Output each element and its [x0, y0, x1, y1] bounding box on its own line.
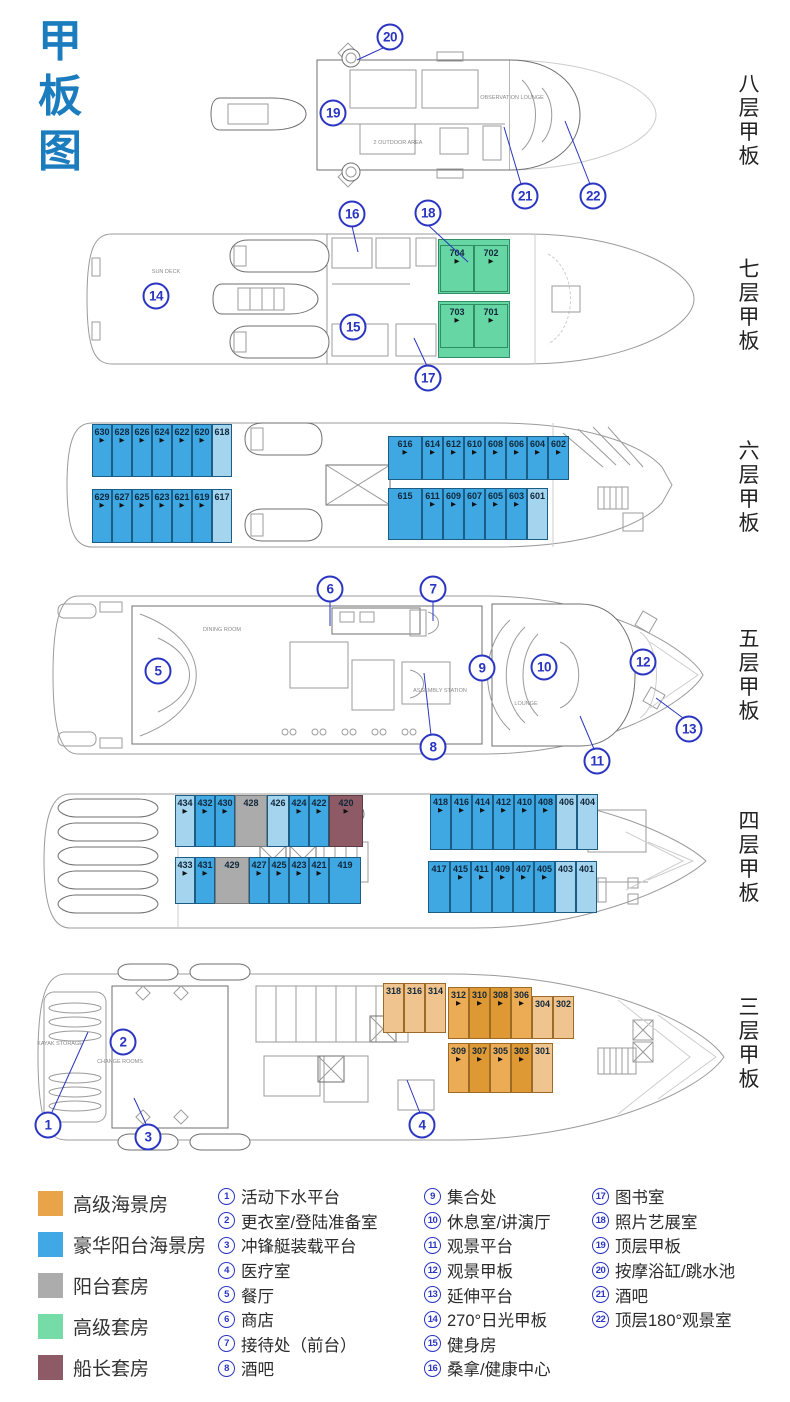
callout-number: 14	[149, 289, 163, 304]
door-arrow-icon: ▶	[451, 450, 456, 457]
facility-label: 观景甲板	[447, 1258, 513, 1282]
door-arrow-icon: ▶	[317, 809, 322, 816]
room-number: 610	[467, 440, 482, 449]
door-arrow-icon: ▶	[472, 450, 477, 457]
cabin-room: 627 ▶	[112, 489, 132, 543]
door-arrow-icon: ▶	[535, 450, 540, 457]
door-arrow-icon: ▶	[472, 502, 477, 509]
cabin-room: 406 ▶	[556, 794, 577, 850]
legend-facility-item: 9 集合处	[424, 1184, 551, 1209]
cabin-room: 620 ▶	[192, 424, 212, 477]
facility-label: 冲锋艇装载平台	[241, 1233, 357, 1257]
facility-label: 活动下水平台	[241, 1184, 340, 1208]
room-number: 305	[493, 1047, 508, 1056]
cabin-room: 432 ▶	[195, 795, 215, 847]
room-type-color-swatch	[38, 1273, 63, 1298]
facility-label: 桑拿/健康中心	[447, 1356, 551, 1380]
cabin-room: 414 ▶	[472, 794, 493, 850]
callout-number: 11	[590, 754, 603, 769]
facility-label: 270°日光甲板	[447, 1307, 547, 1331]
room-type-label: 高级套房	[73, 1313, 149, 1340]
room-number: 607	[467, 492, 482, 501]
cabin-room: 617 ▶	[212, 489, 232, 543]
page-title: 甲 板 图	[38, 14, 82, 179]
ship-outline-deck-4	[28, 782, 723, 940]
room-number: 314	[428, 987, 443, 996]
cabin-room: 701 ▶	[474, 304, 508, 348]
door-arrow-icon: ▶	[183, 809, 188, 816]
deck-6-rooms-left-top: 630 ▶ 628 ▶ 626 ▶ 624 ▶ 622 ▶ 620 ▶ 618 …	[92, 424, 232, 477]
cabin-room: 304 ▶	[532, 996, 553, 1039]
room-number: 429	[224, 861, 239, 870]
door-arrow-icon: ▶	[514, 450, 519, 457]
room-number: 307	[472, 1047, 487, 1056]
deck-6-rooms-right-bottom: 615 ▶ 611 ▶ 609 ▶ 607 ▶ 605 ▶ 603 ▶ 601 …	[388, 488, 548, 540]
cabin-room: 302 ▶	[553, 996, 574, 1039]
cabin-room: 433 ▶	[175, 857, 195, 904]
facility-number-badge: 22	[592, 1311, 609, 1328]
cabin-room: 624 ▶	[152, 424, 172, 477]
callout-marker: 5	[145, 658, 172, 685]
room-number: 309	[451, 1047, 466, 1056]
plan-note: LOUNGE	[514, 701, 537, 707]
legend-facility-item: 16 桑拿/健康中心	[424, 1356, 551, 1381]
cabin-room: 422 ▶	[309, 795, 329, 847]
door-arrow-icon: ▶	[519, 1057, 524, 1064]
legend-facility-item: 2 更衣室/登陆准备室	[218, 1209, 378, 1234]
legend-facility-item: 7 接待处（前台）	[218, 1332, 378, 1357]
plan-note: 2 OUTDOOR AREA	[374, 140, 423, 146]
legend-facility-item: 11 观景平台	[424, 1233, 551, 1258]
room-number: 407	[516, 865, 531, 874]
room-number: 630	[94, 428, 109, 437]
cabin-room: 417 ▶	[428, 861, 450, 913]
callout-number: 22	[586, 189, 600, 204]
room-number: 412	[496, 798, 511, 807]
ship-outline-deck-5	[40, 582, 720, 767]
legend-facility-item: 6 商店	[218, 1307, 378, 1332]
cabin-room: 314 ▶	[425, 983, 446, 1033]
facility-number-badge: 15	[424, 1335, 441, 1352]
facility-number-badge: 19	[592, 1237, 609, 1254]
cabin-room: 601 ▶	[527, 488, 548, 540]
cabin-room: 424 ▶	[289, 795, 309, 847]
callout-number: 2	[119, 1035, 126, 1050]
cabin-room: 602 ▶	[548, 436, 569, 480]
facility-number-badge: 9	[424, 1188, 441, 1205]
door-arrow-icon: ▶	[498, 1001, 503, 1008]
room-number: 627	[114, 493, 129, 502]
ship-outline-deck-7	[80, 228, 710, 370]
room-number: 406	[559, 798, 574, 807]
facility-number-badge: 6	[218, 1311, 235, 1328]
cabin-room: 415 ▶	[450, 861, 471, 913]
deck-3-label: 三层甲板	[736, 996, 762, 1092]
facility-number-badge: 16	[424, 1360, 441, 1377]
deck-3-rooms-bottom: 309 ▶ 307 ▶ 305 ▶ 303 ▶ 301 ▶	[448, 1043, 553, 1093]
room-type-color-swatch	[38, 1232, 63, 1257]
room-type-color-swatch	[38, 1191, 63, 1216]
cabin-room: 401 ▶	[576, 861, 597, 913]
deck-7-label: 七层甲板	[736, 258, 762, 354]
cabin-room: 606 ▶	[506, 436, 527, 480]
deck-7-suites-bottom: 703 ▶ 701 ▶	[438, 301, 510, 358]
room-number: 431	[197, 861, 212, 870]
legend-room-type-row: 高级海景房	[38, 1183, 206, 1224]
door-arrow-icon: ▶	[180, 503, 185, 510]
callout-marker: 22	[580, 183, 607, 210]
cabin-room: 428 ▶	[235, 795, 267, 847]
deck-6-label: 六层甲板	[736, 440, 762, 536]
deck-8-label: 八层甲板	[736, 73, 762, 169]
cabin-room: 704 ▶	[440, 245, 474, 292]
callout-marker: 2	[110, 1029, 137, 1056]
room-number: 618	[214, 428, 229, 437]
legend-facility-item: 13 延伸平台	[424, 1282, 551, 1307]
door-arrow-icon: ▶	[100, 438, 105, 445]
door-arrow-icon: ▶	[203, 809, 208, 816]
cabin-room: 404 ▶	[577, 794, 598, 850]
cabin-room: 409 ▶	[492, 861, 513, 913]
facility-number-badge: 20	[592, 1262, 609, 1279]
callout-number: 6	[326, 582, 333, 597]
legend-facility-item: 18 照片艺展室	[592, 1209, 735, 1234]
callout-marker: 9	[469, 655, 496, 682]
callout-marker: 18	[415, 200, 442, 227]
door-arrow-icon: ▶	[200, 503, 205, 510]
legend-facilities-column-3: 17 图书室 18 照片艺展室 19 顶层甲板 20 按摩浴缸/跳水池 21 酒…	[592, 1184, 735, 1332]
plan-note: ASSEMBLY STATION	[413, 688, 467, 694]
room-number: 704	[449, 249, 464, 258]
legend-facilities-column-1: 1 活动下水平台 2 更衣室/登陆准备室 3 冲锋艇装载平台 4 医疗室 5 餐…	[218, 1184, 378, 1381]
room-number: 620	[194, 428, 209, 437]
door-arrow-icon: ▶	[200, 438, 205, 445]
room-number: 308	[493, 991, 508, 1000]
legend-facility-item: 15 健身房	[424, 1332, 551, 1357]
callout-number: 19	[326, 106, 340, 121]
cabin-room: 623 ▶	[152, 489, 172, 543]
room-number: 601	[530, 492, 545, 501]
facility-number-badge: 13	[424, 1286, 441, 1303]
facility-label: 接待处（前台）	[241, 1332, 357, 1356]
room-number: 626	[134, 428, 149, 437]
room-number: 427	[251, 861, 266, 870]
cabin-room: 305 ▶	[490, 1043, 511, 1093]
callout-number: 3	[144, 1130, 151, 1145]
callout-marker: 13	[676, 716, 703, 743]
cabin-room: 625 ▶	[132, 489, 152, 543]
door-arrow-icon: ▶	[556, 450, 561, 457]
callout-marker: 12	[630, 649, 657, 676]
legend-facility-item: 12 观景甲板	[424, 1258, 551, 1283]
cabin-room: 611 ▶	[422, 488, 443, 540]
door-arrow-icon: ▶	[489, 259, 494, 266]
room-number: 422	[311, 799, 326, 808]
cabin-room: 308 ▶	[490, 987, 511, 1039]
room-number: 414	[475, 798, 490, 807]
facility-label: 更衣室/登陆准备室	[241, 1209, 378, 1233]
legend-facilities-column-2: 9 集合处 10 休息室/讲演厅 11 观景平台 12 观景甲板 13 延伸平台…	[424, 1184, 551, 1381]
room-number: 404	[580, 798, 595, 807]
legend-facility-item: 20 按摩浴缸/跳水池	[592, 1258, 735, 1283]
door-arrow-icon: ▶	[521, 875, 526, 882]
door-arrow-icon: ▶	[403, 450, 408, 457]
callout-number: 1	[44, 1118, 51, 1133]
room-number: 430	[217, 799, 232, 808]
cabin-room: 421 ▶	[309, 857, 329, 904]
legend-facility-item: 5 餐厅	[218, 1282, 378, 1307]
cabin-room: 301 ▶	[532, 1043, 553, 1093]
facility-number-badge: 8	[218, 1360, 235, 1377]
cabin-room: 622 ▶	[172, 424, 192, 477]
callout-number: 20	[383, 30, 397, 45]
callout-marker: 1	[35, 1112, 62, 1139]
door-arrow-icon: ▶	[455, 259, 460, 266]
cabin-room: 605 ▶	[485, 488, 506, 540]
cabin-room: 418 ▶	[430, 794, 451, 850]
facility-number-badge: 4	[218, 1262, 235, 1279]
facility-label: 休息室/讲演厅	[447, 1209, 551, 1233]
room-number: 622	[174, 428, 189, 437]
door-arrow-icon: ▶	[430, 502, 435, 509]
cabin-room: 628 ▶	[112, 424, 132, 477]
legend-facility-item: 22 顶层180°观景室	[592, 1307, 735, 1332]
legend-facility-item: 4 医疗室	[218, 1258, 378, 1283]
legend-facility-item: 1 活动下水平台	[218, 1184, 378, 1209]
callout-number: 9	[478, 661, 485, 676]
room-number: 426	[270, 799, 285, 808]
room-number: 424	[291, 799, 306, 808]
callout-number: 5	[154, 664, 161, 679]
room-number: 312	[451, 991, 466, 1000]
callout-number: 8	[429, 740, 436, 755]
cabin-room: 425 ▶	[269, 857, 289, 904]
callout-marker: 14	[143, 283, 170, 310]
door-arrow-icon: ▶	[180, 438, 185, 445]
callout-number: 17	[421, 371, 435, 386]
door-arrow-icon: ▶	[480, 808, 485, 815]
facility-label: 延伸平台	[447, 1283, 513, 1307]
room-number: 432	[197, 799, 212, 808]
facility-number-badge: 1	[218, 1188, 235, 1205]
callout-marker: 15	[340, 314, 367, 341]
callout-number: 15	[346, 320, 360, 335]
facility-label: 医疗室	[241, 1258, 291, 1282]
cabin-room: 307 ▶	[469, 1043, 490, 1093]
callout-number: 16	[345, 207, 359, 222]
room-number: 428	[243, 799, 258, 808]
cabin-room: 630 ▶	[92, 424, 112, 477]
cabin-room: 405 ▶	[534, 861, 555, 913]
callout-number: 10	[537, 660, 551, 675]
legend-facility-item: 19 顶层甲板	[592, 1233, 735, 1258]
callout-marker: 20	[377, 24, 404, 51]
callout-marker: 4	[409, 1112, 436, 1139]
facility-label: 顶层甲板	[615, 1233, 681, 1257]
door-arrow-icon: ▶	[522, 808, 527, 815]
room-number: 629	[94, 493, 109, 502]
door-arrow-icon: ▶	[140, 503, 145, 510]
door-arrow-icon: ▶	[430, 450, 435, 457]
door-arrow-icon: ▶	[203, 871, 208, 878]
room-number: 614	[425, 440, 440, 449]
deck-5-label: 五层甲板	[736, 628, 762, 724]
facility-number-badge: 10	[424, 1212, 441, 1229]
facility-number-badge: 14	[424, 1311, 441, 1328]
room-number: 425	[271, 861, 286, 870]
legend-facility-item: 10 休息室/讲演厅	[424, 1209, 551, 1234]
door-arrow-icon: ▶	[183, 871, 188, 878]
callout-marker: 10	[531, 654, 558, 681]
facility-label: 顶层180°观景室	[615, 1307, 732, 1331]
door-arrow-icon: ▶	[257, 871, 262, 878]
plan-note: OBSERVATION LOUNGE	[480, 95, 544, 101]
legend-room-types: 高级海景房 豪华阳台海景房 阳台套房 高级套房 船长套房	[38, 1183, 206, 1388]
facility-number-badge: 17	[592, 1188, 609, 1205]
room-number: 701	[483, 308, 498, 317]
room-type-color-swatch	[38, 1355, 63, 1380]
legend-room-type-row: 高级套房	[38, 1306, 206, 1347]
door-arrow-icon: ▶	[277, 871, 282, 878]
room-number: 415	[453, 865, 468, 874]
deck-4-rooms-left-top: 434 ▶ 432 ▶ 430 ▶ 428 ▶ 426 ▶ 424 ▶ 422 …	[175, 795, 363, 847]
room-number: 318	[386, 987, 401, 996]
cabin-room: 610 ▶	[464, 436, 485, 480]
room-number: 623	[154, 493, 169, 502]
door-arrow-icon: ▶	[438, 808, 443, 815]
room-type-color-swatch	[38, 1314, 63, 1339]
room-type-label: 船长套房	[73, 1354, 149, 1381]
callout-marker: 17	[415, 365, 442, 392]
room-number: 604	[530, 440, 545, 449]
plan-note: DINING ROOM	[203, 627, 241, 633]
room-number: 612	[446, 440, 461, 449]
facility-number-badge: 3	[218, 1237, 235, 1254]
room-number: 625	[134, 493, 149, 502]
facility-number-badge: 7	[218, 1335, 235, 1352]
room-number: 304	[535, 1000, 550, 1009]
callout-number: 18	[421, 206, 435, 221]
cabin-room: 618 ▶	[212, 424, 232, 477]
door-arrow-icon: ▶	[542, 875, 547, 882]
room-number: 702	[483, 249, 498, 258]
door-arrow-icon: ▶	[458, 875, 463, 882]
room-number: 310	[472, 991, 487, 1000]
cabin-room: 609 ▶	[443, 488, 464, 540]
room-number: 421	[311, 861, 326, 870]
door-arrow-icon: ▶	[120, 438, 125, 445]
callout-number: 13	[682, 722, 696, 737]
room-number: 603	[509, 492, 524, 501]
callout-marker: 3	[135, 1124, 162, 1151]
deck-7-suites-top: 704 ▶ 702 ▶	[438, 239, 510, 294]
door-arrow-icon: ▶	[455, 318, 460, 325]
room-number: 303	[514, 1047, 529, 1056]
room-number: 417	[431, 865, 446, 874]
callout-marker: 6	[317, 576, 344, 603]
room-number: 301	[535, 1047, 550, 1056]
cabin-room: 403 ▶	[555, 861, 576, 913]
door-arrow-icon: ▶	[223, 809, 228, 816]
cabin-room: 420 ▶	[329, 795, 363, 847]
cabin-room: 318 ▶	[383, 983, 404, 1033]
facility-number-badge: 5	[218, 1286, 235, 1303]
room-number: 619	[194, 493, 209, 502]
door-arrow-icon: ▶	[501, 808, 506, 815]
cabin-room: 431 ▶	[195, 857, 215, 904]
facility-number-badge: 11	[424, 1237, 441, 1254]
room-number: 420	[338, 799, 353, 808]
facility-number-badge: 12	[424, 1262, 441, 1279]
cabin-room: 616 ▶	[388, 436, 422, 480]
legend-room-type-row: 船长套房	[38, 1347, 206, 1388]
room-number: 411	[474, 865, 489, 874]
room-number: 306	[514, 991, 529, 1000]
cabin-room: 604 ▶	[527, 436, 548, 480]
door-arrow-icon: ▶	[297, 809, 302, 816]
callout-marker: 16	[339, 201, 366, 228]
door-arrow-icon: ▶	[160, 503, 165, 510]
legend-facility-item: 17 图书室	[592, 1184, 735, 1209]
room-number: 433	[177, 861, 192, 870]
door-arrow-icon: ▶	[519, 1001, 524, 1008]
room-number: 609	[446, 492, 461, 501]
facility-number-badge: 2	[218, 1212, 235, 1229]
facility-label: 集合处	[447, 1184, 497, 1208]
room-number: 703	[449, 308, 464, 317]
cabin-room: 429 ▶	[215, 857, 249, 904]
cabin-room: 619 ▶	[192, 489, 212, 543]
callout-marker: 8	[420, 734, 447, 761]
cabin-room: 423 ▶	[289, 857, 309, 904]
cabin-room: 612 ▶	[443, 436, 464, 480]
room-number: 401	[579, 865, 594, 874]
cabin-room: 607 ▶	[464, 488, 485, 540]
room-number: 416	[454, 798, 469, 807]
callout-number: 21	[518, 189, 532, 204]
room-number: 608	[488, 440, 503, 449]
callout-number: 12	[636, 655, 650, 670]
cabin-room: 427 ▶	[249, 857, 269, 904]
room-number: 617	[214, 493, 229, 502]
door-arrow-icon: ▶	[120, 503, 125, 510]
cabin-room: 430 ▶	[215, 795, 235, 847]
room-number: 606	[509, 440, 524, 449]
callout-marker: 19	[320, 100, 347, 127]
plan-note: KAYAK STORAGE	[37, 1041, 83, 1047]
facility-label: 餐厅	[241, 1283, 274, 1307]
cabin-room: 615 ▶	[388, 488, 422, 540]
door-arrow-icon: ▶	[451, 502, 456, 509]
ship-outline-deck-8	[200, 28, 670, 203]
door-arrow-icon: ▶	[160, 438, 165, 445]
room-number: 409	[495, 865, 510, 874]
cabin-room: 702 ▶	[474, 245, 508, 292]
door-arrow-icon: ▶	[317, 871, 322, 878]
cabin-room: 614 ▶	[422, 436, 443, 480]
door-arrow-icon: ▶	[479, 875, 484, 882]
legend-room-type-row: 豪华阳台海景房	[38, 1224, 206, 1265]
facility-label: 酒吧	[241, 1356, 274, 1380]
deck-plan-page: 甲 板 图 八层甲板	[0, 0, 790, 1402]
door-arrow-icon: ▶	[514, 502, 519, 509]
door-arrow-icon: ▶	[493, 502, 498, 509]
door-arrow-icon: ▶	[344, 809, 349, 816]
cabin-room: 303 ▶	[511, 1043, 532, 1093]
door-arrow-icon: ▶	[493, 450, 498, 457]
callout-number: 4	[418, 1118, 425, 1133]
legend-facility-item: 3 冲锋艇装载平台	[218, 1233, 378, 1258]
